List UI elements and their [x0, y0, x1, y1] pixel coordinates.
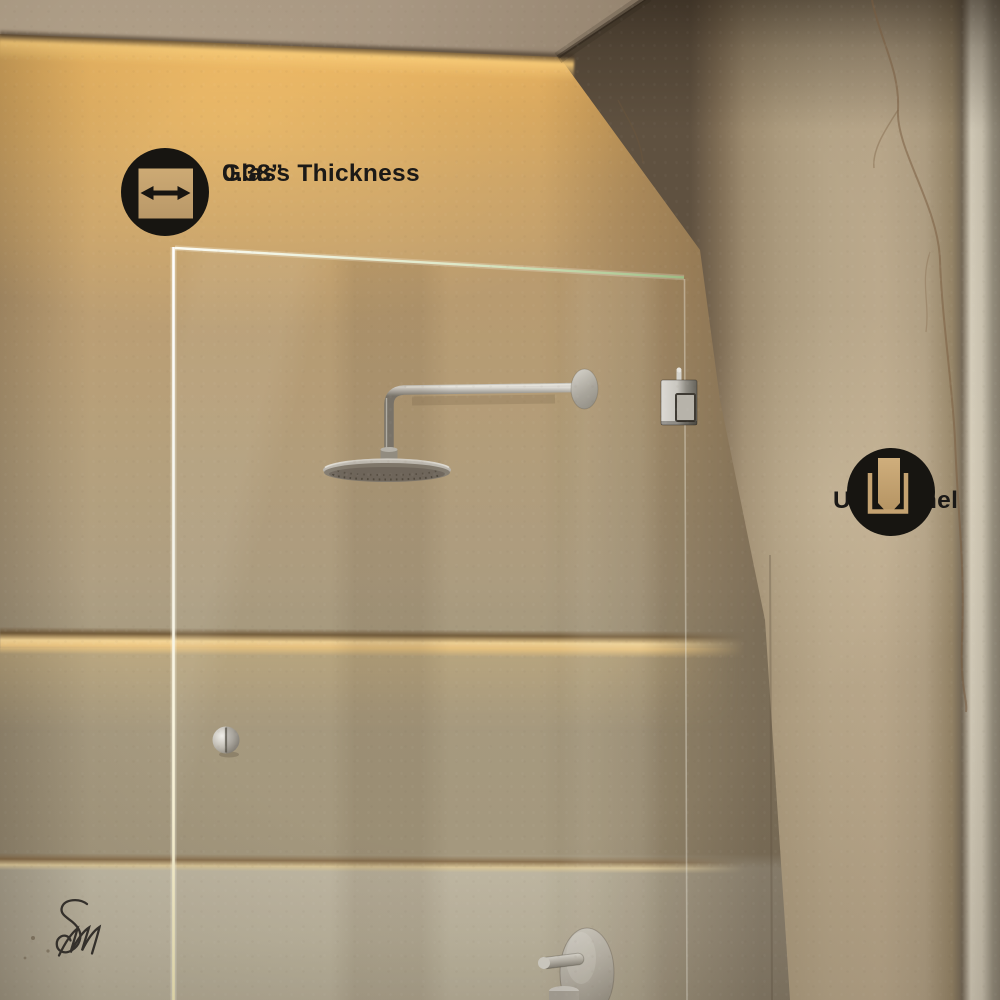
glass-thickness-callout — [121, 148, 209, 236]
shower-product-photo: Glass Thickness 0.38” U-Channel SM — [0, 0, 1000, 1000]
glass-thickness-value: 0.38” — [222, 158, 283, 191]
brand-monogram: SM — [38, 893, 116, 975]
u-channel-icon — [847, 448, 935, 536]
u-channel-callout — [847, 448, 935, 536]
width-arrows-icon — [121, 148, 209, 236]
